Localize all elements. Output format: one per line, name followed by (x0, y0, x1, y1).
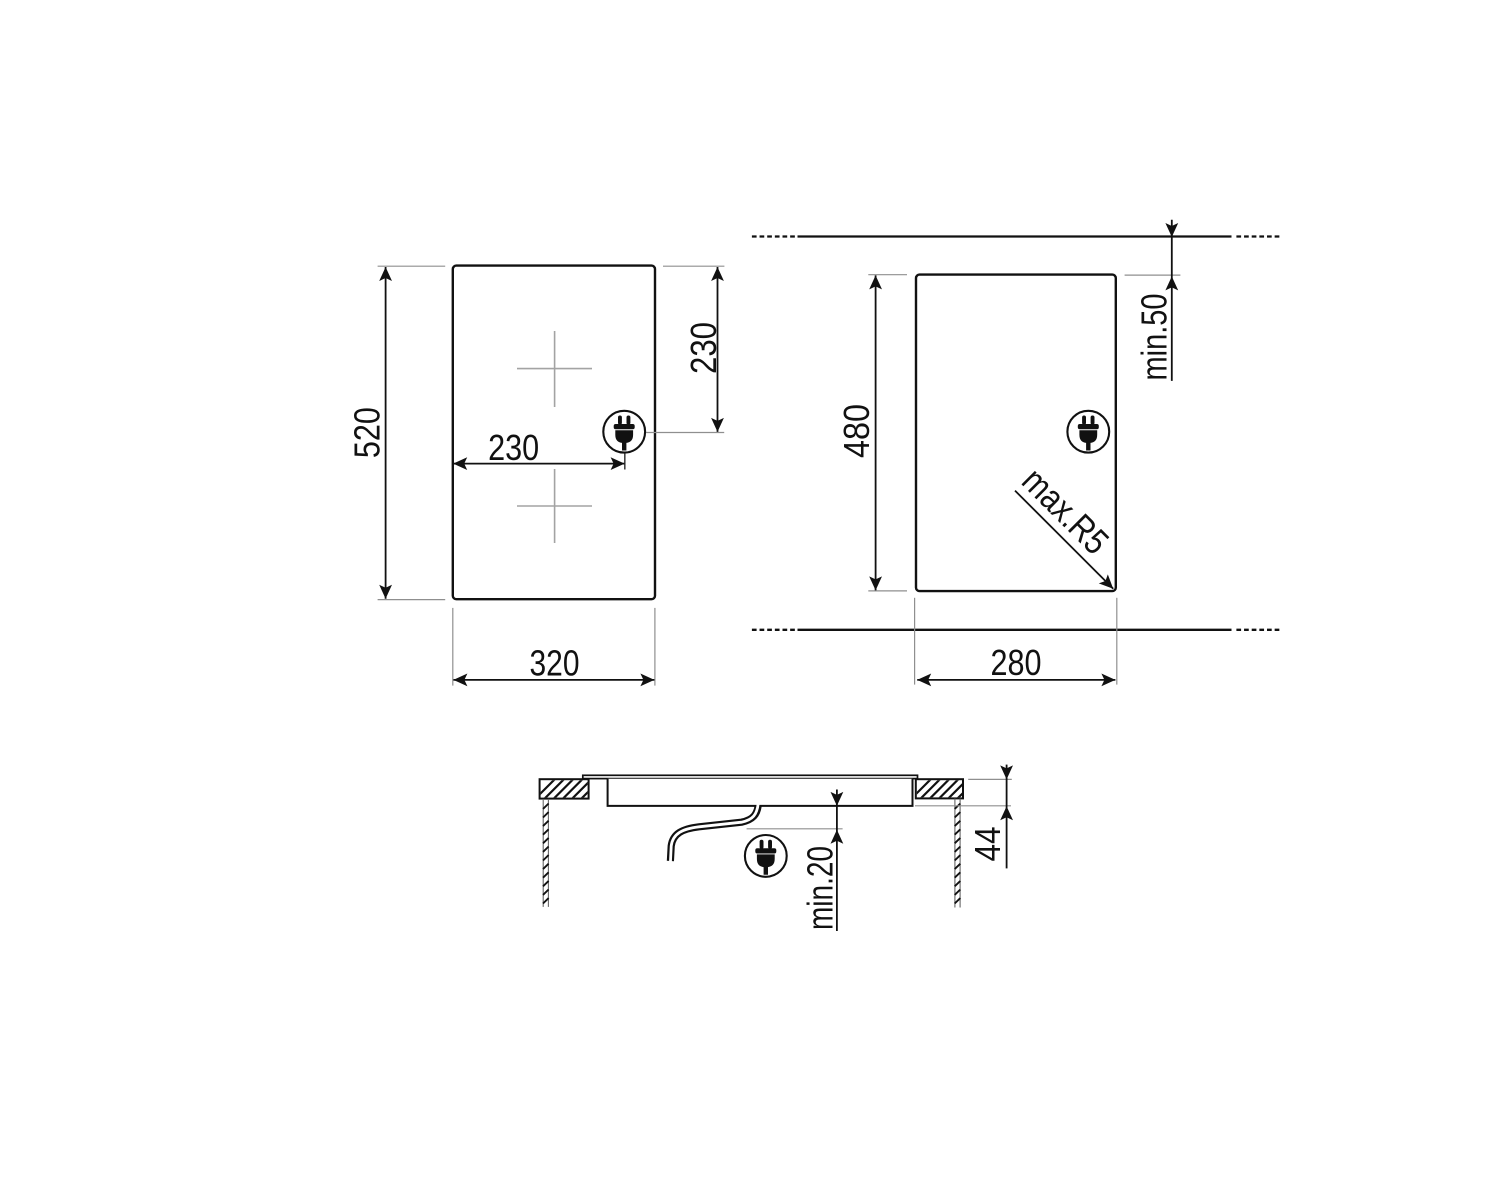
svg-text:44: 44 (967, 827, 1008, 862)
svg-text:230: 230 (488, 427, 539, 468)
svg-text:320: 320 (530, 642, 580, 683)
svg-text:230: 230 (683, 322, 724, 374)
svg-text:520: 520 (347, 407, 388, 458)
svg-text:280: 280 (991, 642, 1042, 683)
svg-text:min.50: min.50 (1134, 294, 1175, 381)
svg-text:min.20: min.20 (800, 846, 841, 930)
svg-text:480: 480 (836, 404, 877, 458)
